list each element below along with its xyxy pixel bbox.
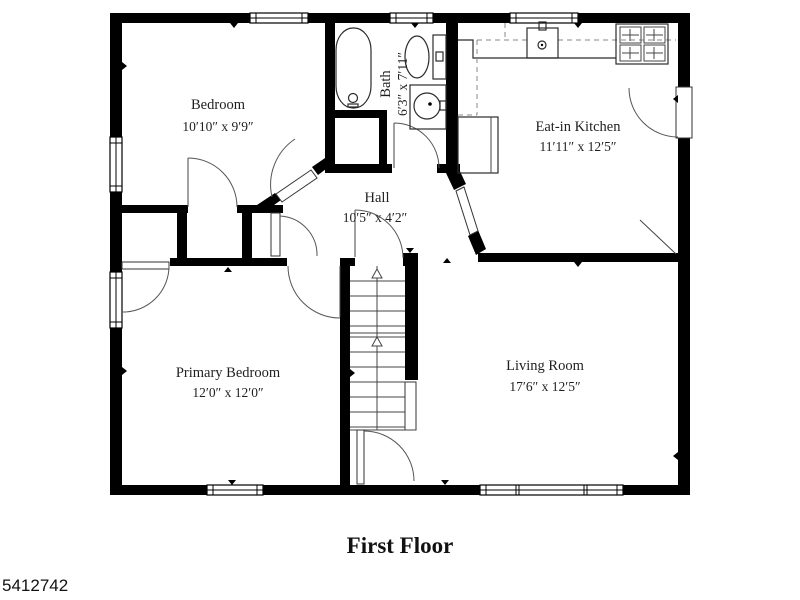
- floor-title: First Floor: [347, 533, 454, 558]
- hall-dims: 10′5″ x 4′2″: [343, 210, 407, 225]
- primary-bedroom-dims: 12′0″ x 12′0″: [192, 385, 263, 400]
- window: [110, 272, 122, 328]
- window-triple: [480, 485, 623, 495]
- door-bedroom-diagonal: [271, 139, 317, 202]
- door-front: [357, 430, 414, 484]
- hall-label: Hall: [365, 190, 390, 206]
- living-room-label: Living Room: [506, 358, 584, 374]
- toilet-icon: [405, 35, 446, 79]
- window: [110, 137, 122, 192]
- floorplan-drawing: Bedroom 10′10″ x 9′9″ Bath 6′3″ x 7′11″ …: [0, 0, 800, 600]
- door-hall-closet: [271, 213, 317, 256]
- stove-icon: [616, 24, 668, 64]
- door-kitchen-side: [629, 87, 692, 138]
- bath-sink-icon: [410, 85, 446, 129]
- counter-edge: [458, 40, 616, 58]
- bedroom-dims: 10′10″ x 9′9″: [182, 119, 253, 134]
- door-bath: [394, 123, 439, 168]
- door-primary-bedroom: [288, 266, 340, 318]
- bath-dims: 6′3″ x 7′11″: [395, 52, 410, 116]
- kitchen-dims: 11′11″ x 12′5″: [540, 139, 617, 154]
- bath-label: Bath: [378, 70, 394, 98]
- bathtub-icon: [336, 28, 371, 108]
- primary-bedroom-label: Primary Bedroom: [176, 365, 281, 381]
- stair-up-arrow: [372, 337, 382, 360]
- door-bedroom-closet: [188, 158, 237, 207]
- listing-id: 5412742: [2, 576, 68, 595]
- upper-cabinet-dashed: [458, 23, 676, 115]
- bedroom-label: Bedroom: [191, 97, 246, 113]
- kitchen-living-opening-line: [640, 220, 676, 254]
- window: [390, 13, 433, 23]
- stair-railing: [405, 382, 416, 430]
- floorplan-page: Bedroom 10′10″ x 9′9″ Bath 6′3″ x 7′11″ …: [0, 0, 800, 600]
- kitchen-label: Eat-in Kitchen: [536, 119, 622, 135]
- window: [250, 13, 308, 23]
- kitchen-sink-icon: [527, 22, 558, 58]
- door-hall-kitchen-diagonal: [456, 187, 478, 235]
- living-room-dims: 17′6″ x 12′5″: [509, 379, 580, 394]
- window: [207, 485, 263, 495]
- fridge-icon: [458, 117, 498, 173]
- door-primary-closet: [122, 262, 169, 312]
